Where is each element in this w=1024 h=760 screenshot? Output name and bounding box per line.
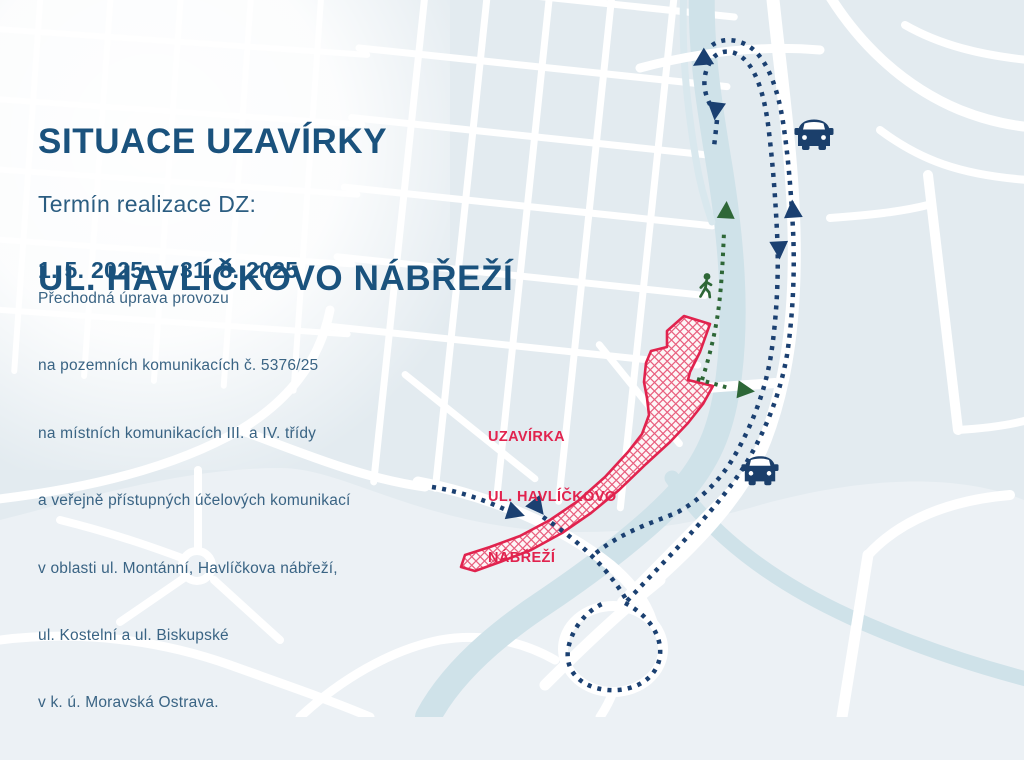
infographic-canvas: SITUACE UZAVÍRKY UL. HAVLÍČKOVO NÁBŘEŽÍ … xyxy=(0,0,1024,717)
description-line: na pozemních komunikacích č. 5376/25 xyxy=(38,355,351,377)
closure-label-line2: UL. HAVLÍČKOVO xyxy=(488,487,617,507)
description-line: v oblasti ul. Montánní, Havlíčkova nábře… xyxy=(38,558,351,580)
closure-label-line1: UZAVÍRKA xyxy=(488,427,617,447)
term-label: Termín realizace DZ: xyxy=(38,191,298,218)
description-line: v k. ú. Moravská Ostrava. xyxy=(38,692,351,714)
description-paragraph: Přechodná úprava provozu na pozemních ko… xyxy=(38,243,351,760)
description-line: na místních komunikacích III. a IV. tříd… xyxy=(38,423,351,445)
closure-label: UZAVÍRKA UL. HAVLÍČKOVO NÁBŘEŽÍ xyxy=(488,386,617,609)
description-line: Přechodná úprava provozu xyxy=(38,288,351,310)
description-line: ul. Kostelní a ul. Biskupské xyxy=(38,625,351,647)
closure-label-line3: NÁBŘEŽÍ xyxy=(488,548,617,568)
description-line: a veřejně přístupných účelových komunika… xyxy=(38,490,351,512)
